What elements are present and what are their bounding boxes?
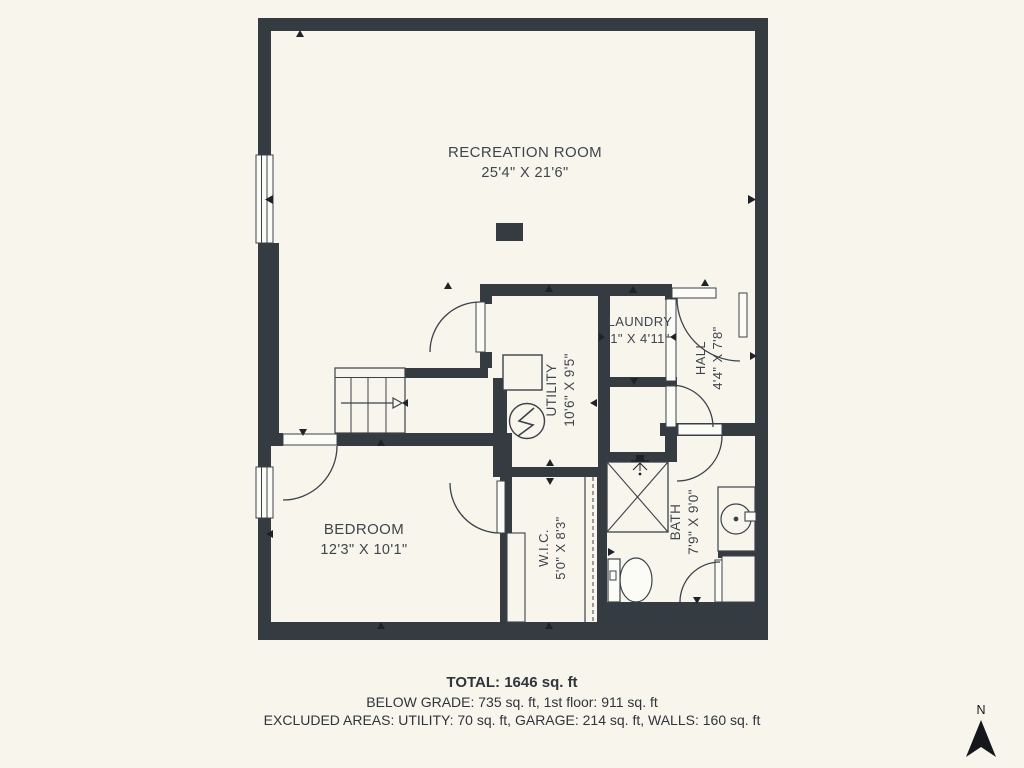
room-name: W.I.C. [535,498,552,598]
room-label-laundry: LAUNDRY 1" X 4'11" [598,313,682,347]
room-label-wic: W.I.C. 5'0" X 8'3" [535,498,569,598]
shower [607,455,668,532]
room-name: BATH [667,467,685,577]
room-name: RECREATION ROOM [430,143,620,163]
support-column [496,223,523,241]
window-bedroom [256,467,273,518]
room-dims: 10'6" X 9'5" [561,330,579,450]
room-label-utility: UTILITY 10'6" X 9'5" [543,330,579,450]
room-label-hall: HALL 4'4" X 7'8" [692,308,726,408]
floor-plan-drawing [0,0,1024,768]
room-name: HALL [692,308,709,408]
grade-area-text: BELOW GRADE: 735 sq. ft, 1st floor: 911 … [0,693,1024,711]
room-label-recreation: RECREATION ROOM 25'4" X 21'6" [430,143,620,183]
room-dims: 1" X 4'11" [598,330,682,347]
floor-plan: RECREATION ROOM 25'4" X 21'6" LAUNDRY 1"… [0,0,1024,768]
room-name: BEDROOM [279,519,449,540]
total-area-text: TOTAL: 1646 sq. ft [0,674,1024,692]
room-dims: 25'4" X 21'6" [430,163,620,183]
room-dims: 4'4" X 7'8" [709,308,726,408]
room-name: LAUNDRY [598,313,682,330]
water-heater [510,404,545,439]
room-dims: 7'9" X 9'0" [685,467,703,577]
utility-tank [503,355,542,390]
room-dims: 12'3" X 10'1" [279,540,449,561]
room-label-bedroom: BEDROOM 12'3" X 10'1" [279,519,449,561]
excluded-area-text: EXCLUDED AREAS: UTILITY: 70 sq. ft, GARA… [0,711,1024,729]
bath-alcove [722,556,755,602]
compass-north-label: N [966,703,996,717]
toilet [608,558,652,602]
sink-vanity [718,487,756,551]
area-summary: TOTAL: 1646 sq. ft BELOW GRADE: 735 sq. … [0,674,1024,729]
stairs [335,368,408,433]
room-label-bath: BATH 7'9" X 9'0" [667,467,703,577]
room-dims: 5'0" X 8'3" [552,498,569,598]
room-name: UTILITY [543,330,561,450]
